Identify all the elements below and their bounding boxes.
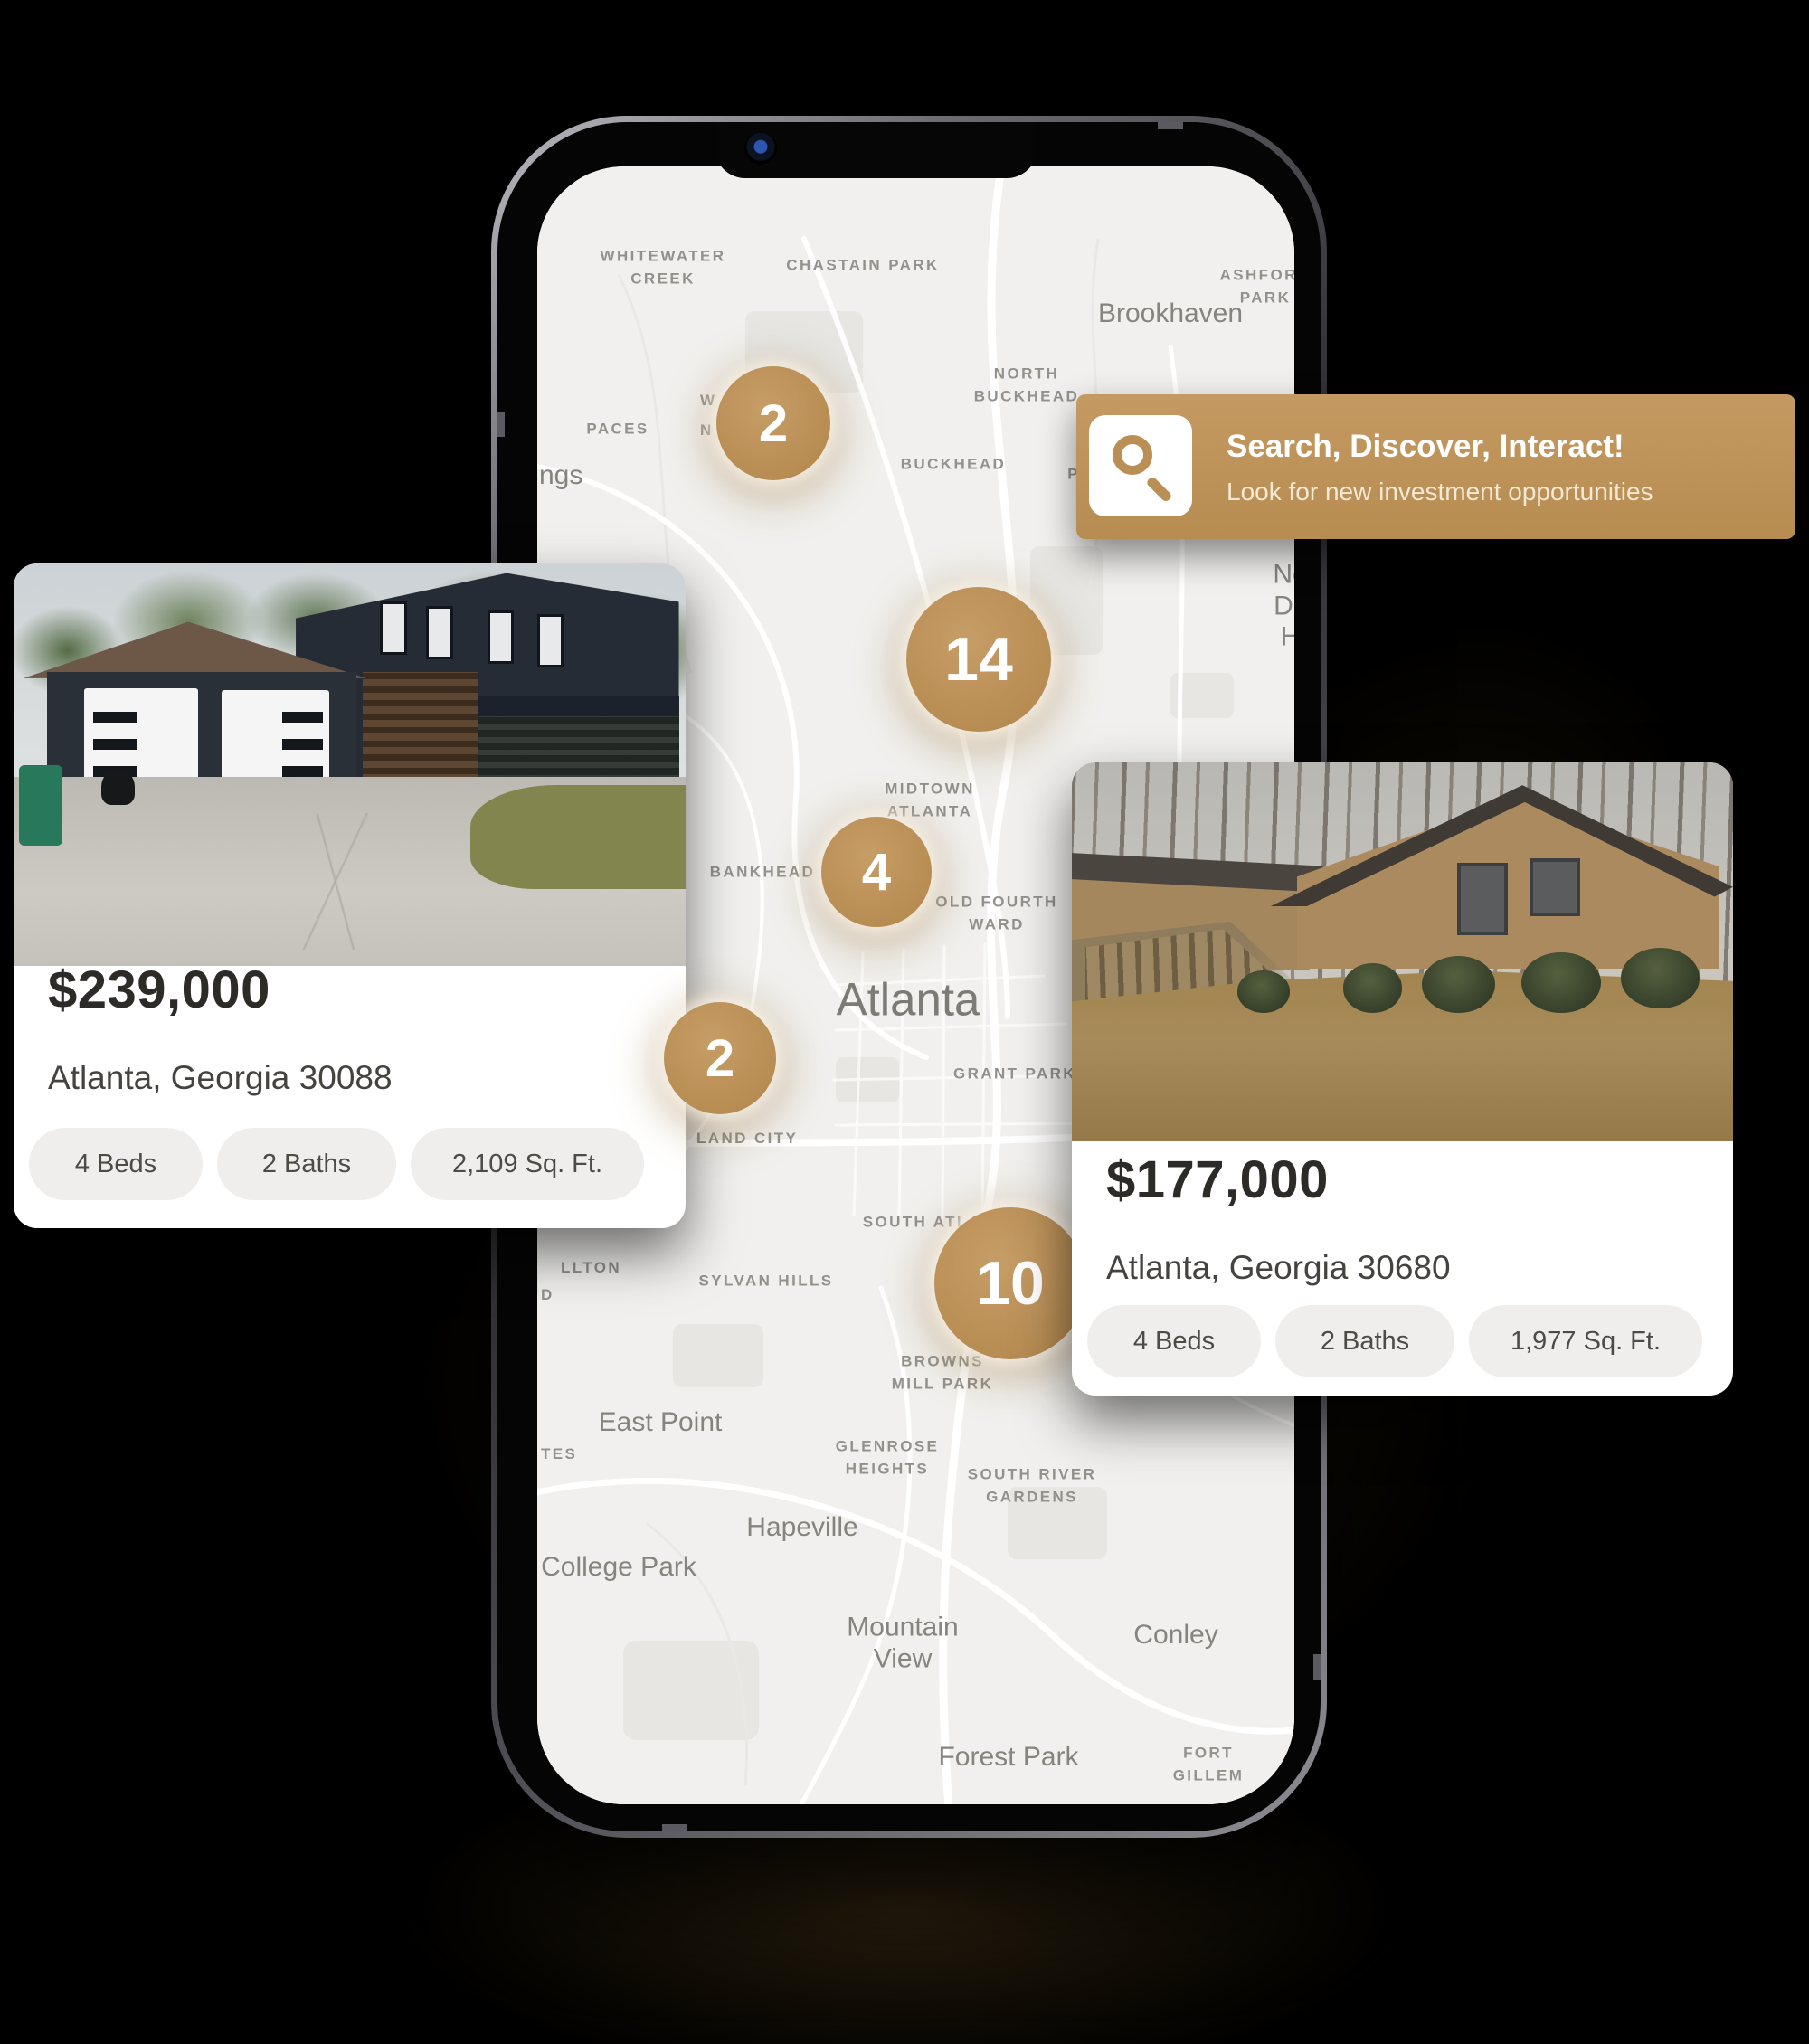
antenna-band	[497, 412, 505, 437]
banner-subtitle: Look for new investment opportunities	[1227, 478, 1653, 506]
search-icon	[1089, 415, 1192, 516]
antenna-band	[1158, 122, 1183, 129]
price-label: $177,000	[1106, 1150, 1329, 1210]
baths-badge: 2 Baths	[217, 1128, 396, 1200]
phone-notch	[715, 122, 1037, 178]
beds-badge: 4 Beds	[29, 1128, 203, 1200]
location-label: Atlanta, Georgia 30680	[1106, 1249, 1451, 1287]
promo-stage: ngs WHITEWATER CREEK CHASTAIN PARK ASHFO…	[0, 0, 1809, 2044]
cluster-marker-4[interactable]: 4	[821, 817, 932, 927]
property-card-239000[interactable]: $239,000 Atlanta, Georgia 30088 4 Beds 2…	[14, 563, 686, 1228]
location-label: Atlanta, Georgia 30088	[48, 1059, 393, 1097]
property-photo-dark-house	[14, 563, 686, 966]
cluster-marker-2-south[interactable]: 2	[664, 1002, 776, 1114]
sqft-badge: 2,109 Sq. Ft.	[411, 1128, 644, 1200]
banner-title: Search, Discover, Interact!	[1227, 429, 1624, 465]
property-card-177000[interactable]: $177,000 Atlanta, Georgia 30680 4 Beds 2…	[1072, 762, 1733, 1396]
antenna-band	[662, 1824, 687, 1831]
antenna-band	[1313, 1654, 1321, 1680]
price-label: $239,000	[48, 960, 270, 1020]
beds-badge: 4 Beds	[1087, 1305, 1261, 1377]
property-photo-brick-house	[1072, 762, 1733, 1141]
sqft-badge: 1,977 Sq. Ft.	[1469, 1305, 1702, 1377]
cluster-marker-14[interactable]: 14	[906, 587, 1051, 732]
cluster-marker-10[interactable]: 10	[934, 1207, 1086, 1359]
search-toast-banner[interactable]: Search, Discover, Interact! Look for new…	[1076, 394, 1795, 539]
front-camera-icon	[744, 132, 777, 165]
baths-badge: 2 Baths	[1275, 1305, 1454, 1377]
cluster-marker-2-north[interactable]: 2	[716, 366, 830, 480]
